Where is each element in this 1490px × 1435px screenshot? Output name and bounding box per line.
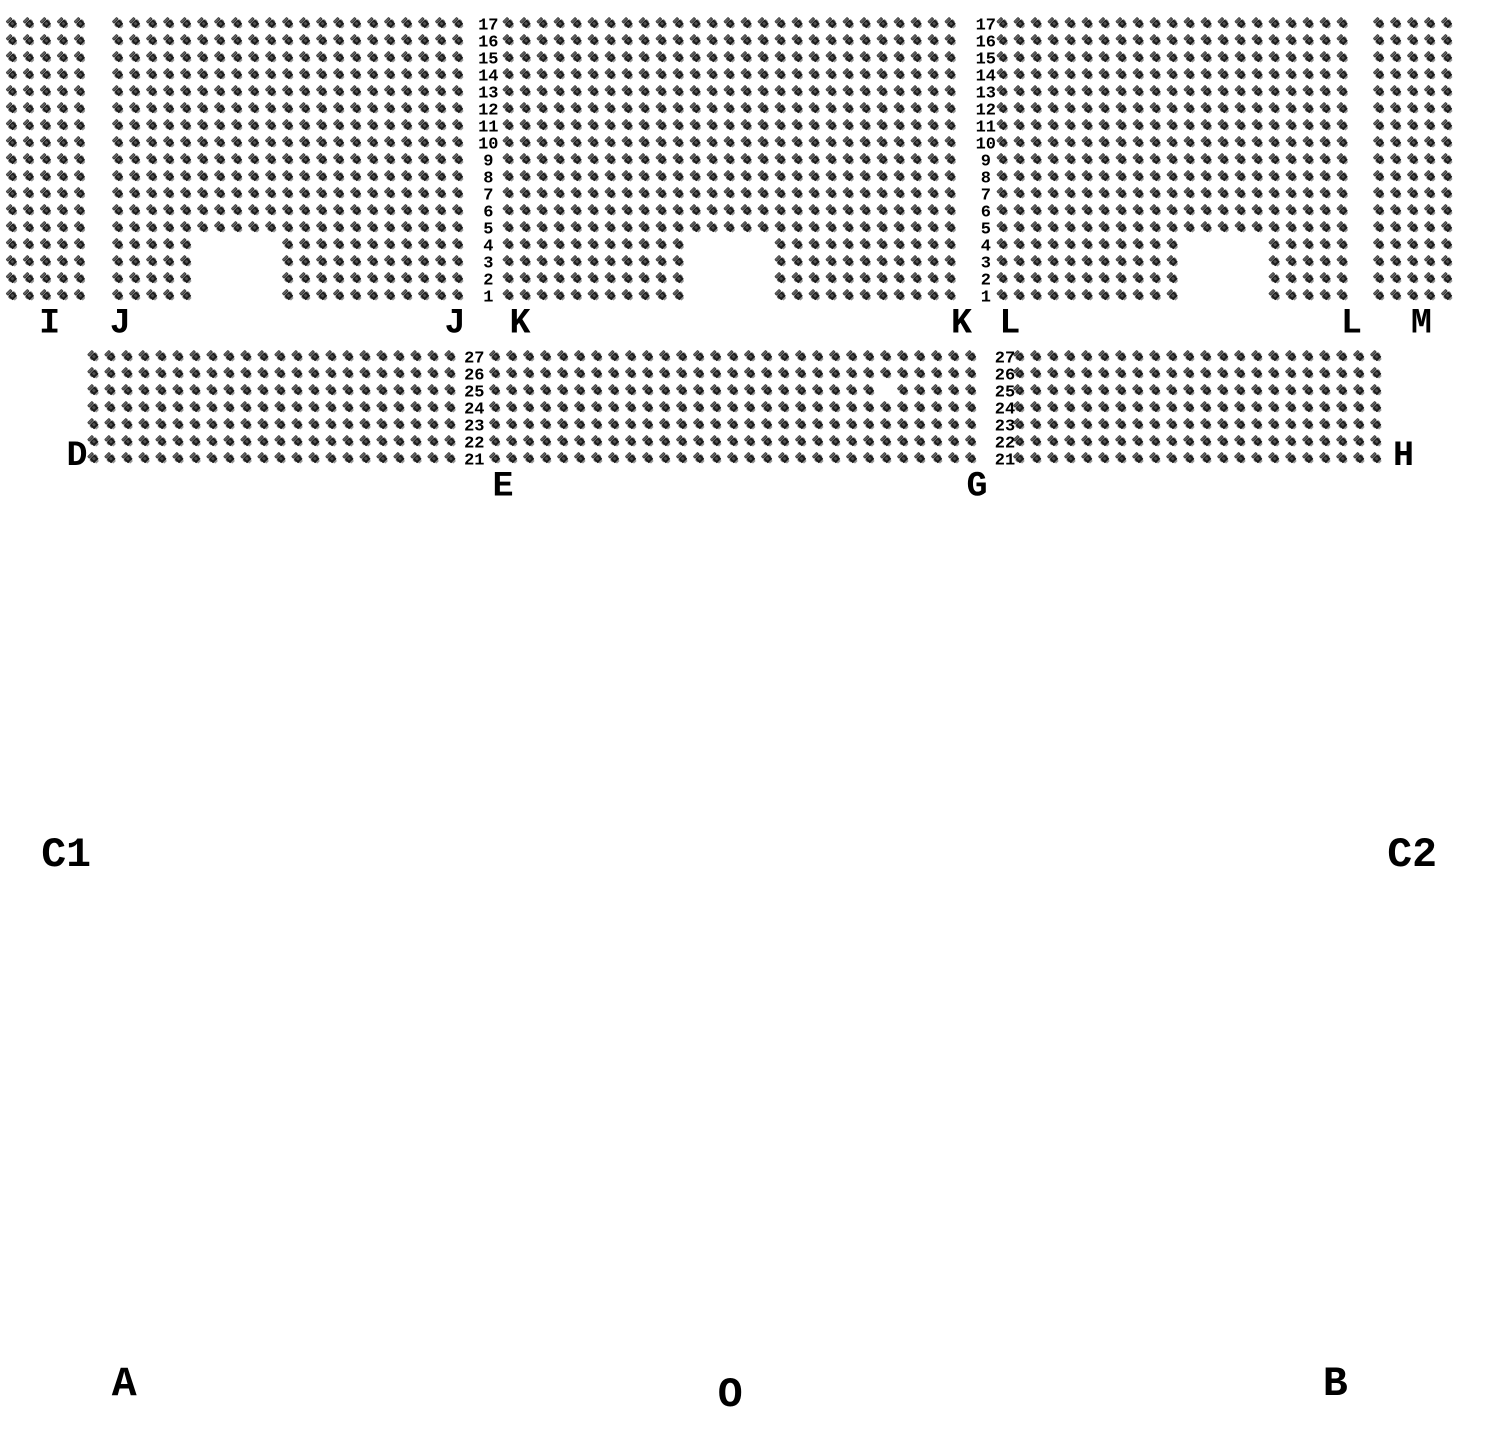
svg-text:O: O	[718, 1372, 743, 1419]
svg-text:1: 1	[981, 289, 991, 308]
svg-text:C2: C2	[1387, 832, 1437, 879]
svg-text:H: H	[1393, 436, 1414, 476]
svg-text:E: E	[492, 467, 513, 507]
svg-text:B: B	[1323, 1361, 1348, 1408]
svg-text:J: J	[110, 303, 131, 343]
svg-text:L: L	[1341, 303, 1362, 343]
svg-text:L: L	[999, 303, 1020, 343]
svg-text:C1: C1	[41, 832, 91, 879]
svg-text:A: A	[112, 1361, 137, 1408]
svg-text:D: D	[66, 436, 87, 476]
svg-text:K: K	[951, 303, 972, 343]
svg-text:21: 21	[995, 452, 1015, 471]
svg-text:K: K	[509, 303, 530, 343]
svg-text:I: I	[39, 303, 60, 343]
svg-text:21: 21	[464, 452, 484, 471]
svg-text:1: 1	[483, 289, 493, 308]
svg-text:M: M	[1411, 303, 1432, 343]
svg-text:J: J	[444, 303, 465, 343]
svg-text:G: G	[966, 467, 987, 507]
